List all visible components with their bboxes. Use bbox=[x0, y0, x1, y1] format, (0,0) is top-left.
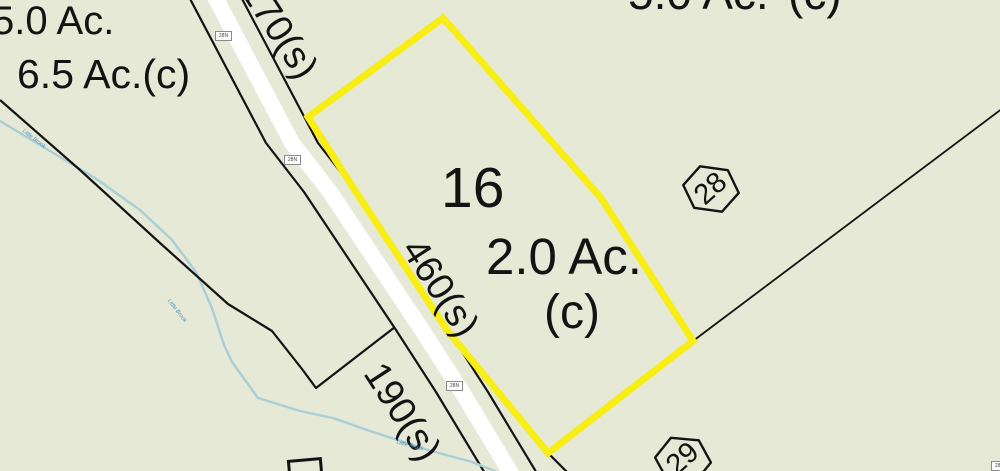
acreage-label-top-right-cut: 5.0 Ac. bbox=[628, 0, 769, 16]
route-marker-box-2: 28N bbox=[284, 155, 301, 165]
acreage-label-top-left-upper: 5.0 Ac. bbox=[0, 1, 114, 41]
parcel-boundary-west bbox=[0, 100, 395, 388]
selected-parcel-lot-number: 16 bbox=[441, 160, 504, 217]
parcel-map: 5.0 Ac. 6.5 Ac.(c) 5.0 Ac. (c) 16 2.0 Ac… bbox=[0, 0, 1000, 471]
route-marker-box-3: 28N bbox=[446, 381, 463, 391]
acreage-label-top-left-lower: 6.5 Ac.(c) bbox=[17, 54, 190, 95]
building-footprint bbox=[288, 459, 321, 471]
road-pavement bbox=[214, 0, 512, 471]
route-marker-box-1: 28N bbox=[215, 31, 232, 41]
selected-parcel-acreage-suffix: (c) bbox=[544, 289, 600, 337]
selected-parcel-acreage: 2.0 Ac. bbox=[486, 231, 642, 282]
parcel-boundary-south-stub bbox=[548, 453, 567, 471]
acreage-suffix-top-right-cut: (c) bbox=[788, 0, 842, 16]
parcel-boundary-east bbox=[693, 108, 1000, 341]
road-left-edge-line bbox=[188, 0, 486, 471]
route-marker-box-4-partial: 28N bbox=[991, 461, 1000, 471]
